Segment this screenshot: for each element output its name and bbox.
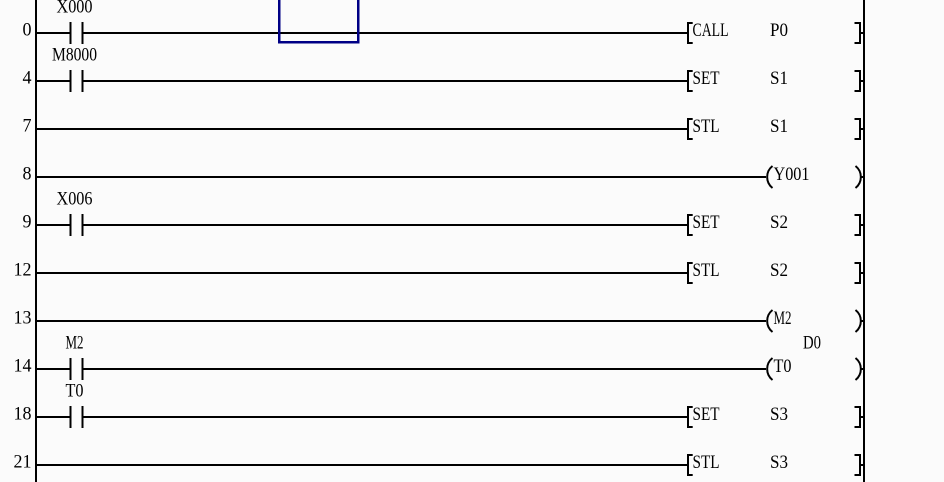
svg-text:S2: S2 [770, 260, 788, 281]
svg-text:SET: SET [693, 68, 720, 89]
svg-text:8: 8 [23, 164, 32, 185]
svg-text:M8000: M8000 [52, 45, 97, 66]
svg-text:S1: S1 [770, 68, 788, 89]
svg-text:CALL: CALL [693, 20, 729, 41]
svg-text:0: 0 [23, 20, 32, 41]
svg-text:M2: M2 [774, 308, 792, 329]
svg-text:S2: S2 [770, 212, 788, 233]
svg-text:T0: T0 [774, 356, 792, 377]
svg-text:9: 9 [23, 212, 32, 233]
svg-text:S3: S3 [770, 404, 788, 425]
svg-text:D0: D0 [803, 333, 821, 354]
svg-text:13: 13 [14, 308, 32, 329]
svg-text:STL: STL [693, 452, 720, 473]
svg-text:4: 4 [23, 68, 32, 89]
svg-text:SET: SET [693, 404, 720, 425]
svg-text:S3: S3 [770, 452, 788, 473]
svg-text:X006: X006 [57, 189, 93, 210]
svg-text:S1: S1 [770, 116, 788, 137]
svg-text:21: 21 [14, 452, 32, 473]
svg-text:14: 14 [14, 356, 32, 377]
svg-text:M2: M2 [66, 333, 84, 354]
svg-text:P0: P0 [770, 20, 788, 41]
svg-text:SET: SET [693, 212, 720, 233]
svg-text:X000: X000 [57, 0, 93, 18]
svg-text:STL: STL [693, 116, 720, 137]
svg-text:STL: STL [693, 260, 720, 281]
svg-text:18: 18 [14, 404, 32, 425]
svg-text:12: 12 [14, 260, 32, 281]
svg-text:T0: T0 [66, 381, 84, 402]
svg-text:7: 7 [23, 116, 32, 137]
svg-text:Y001: Y001 [774, 164, 810, 185]
